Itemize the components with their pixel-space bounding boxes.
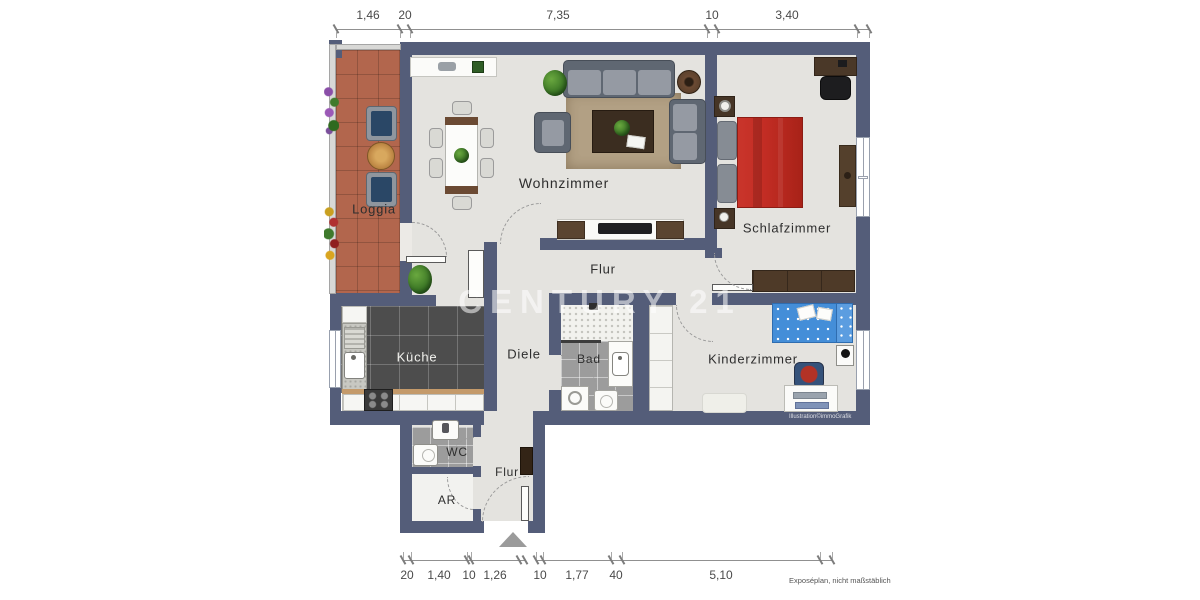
bedroom-window-bar (858, 176, 868, 179)
kitchen-window (329, 330, 341, 388)
dim-guide (543, 552, 544, 559)
sideboard-plant (472, 61, 484, 73)
wall-wc-ar-partition (412, 467, 481, 474)
room-label-wohnzimmer: Wohnzimmer (519, 175, 609, 191)
bed-fold-2 (778, 118, 783, 207)
armchair (534, 112, 571, 153)
loggia-door-leaf (406, 256, 446, 263)
room-label-flur-oben: Flur (590, 262, 616, 277)
dresser-knob (844, 172, 851, 179)
bedroom-sideboard (752, 270, 855, 292)
room-label-kueche: Küche (397, 350, 438, 365)
wall-top (400, 42, 870, 55)
dim-bottom-6: 1,77 (565, 568, 588, 582)
coffee-table-papers (626, 135, 645, 149)
bed-pillow-2 (717, 164, 737, 203)
dim-bottom-8: 5,10 (709, 568, 732, 582)
bedroom-desk-item (838, 60, 847, 67)
wall-wc-flur-1 (473, 425, 481, 437)
tv-cabinet-right (656, 221, 684, 239)
sofa-top (563, 60, 675, 98)
dim-bottom-3: 10 (462, 568, 475, 582)
room-label-kinderzimmer: Kinderzimmer (708, 352, 798, 367)
dim-guide (336, 31, 337, 38)
loggia-chair-1 (366, 106, 397, 141)
dim-bottom-5: 10 (533, 568, 546, 582)
wall-kitchen-diele (484, 306, 497, 411)
dim-guide (611, 552, 612, 559)
flower-box-bottom (324, 206, 339, 264)
dimension-line-top (336, 29, 869, 30)
wall-bottom-left (330, 411, 484, 425)
dim-guide (471, 552, 472, 559)
room-label-ar: AR (438, 493, 456, 507)
washing-machine-drum (568, 391, 582, 405)
kitchen-faucet (351, 355, 356, 360)
wall-vestibule-left (400, 425, 412, 533)
wall-loggia-bottom (330, 293, 412, 306)
hall-wardrobe (520, 447, 533, 475)
wall-vestibule-bottom-right (528, 521, 545, 533)
dim-top-1: 1,46 (356, 8, 379, 22)
loggia-round-table (367, 142, 395, 170)
dim-bottom-4: 1,26 (483, 568, 506, 582)
double-bed (737, 117, 803, 208)
sofa-top-cushion-2 (603, 70, 636, 95)
dining-table-plant (454, 148, 469, 163)
dim-top-2: 20 (398, 8, 411, 22)
sideboard-decor (438, 62, 456, 71)
bed-fold (753, 118, 762, 207)
wc-toilet-bowl (422, 449, 435, 462)
dimension-line-bottom-right (536, 560, 832, 561)
sofa-right-cushion-2 (673, 133, 697, 160)
dining-chair-bottom (452, 196, 472, 210)
dim-guide (869, 31, 870, 38)
room-label-bad: Bad (577, 352, 601, 366)
dim-guide (832, 552, 833, 559)
floor-plan: Loggia Wohnzimmer Schlafzimmer Flur Küch… (0, 0, 1200, 600)
entrance-arrow-icon (499, 532, 527, 547)
room-label-loggia: Loggia (352, 202, 396, 217)
livingroom-plant (543, 70, 567, 96)
armchair-cushion (542, 120, 564, 146)
dining-table-end-bottom (445, 186, 478, 194)
kitchen-cabinet-topleft (342, 306, 367, 323)
floor-vestibule-gap (484, 411, 533, 425)
sofa-right (669, 99, 706, 164)
dim-guide (410, 31, 411, 38)
side-table-round (677, 70, 701, 94)
dining-table-end-top (445, 117, 478, 125)
dining-chair-left-2 (429, 158, 443, 178)
room-label-diele: Diele (507, 347, 541, 362)
wall-kitchen-top (412, 295, 436, 306)
dim-top-3: 7,35 (546, 8, 569, 22)
wall-wc-flur-2 (473, 466, 481, 477)
nightstand-top-lamp (719, 100, 731, 112)
dimension-line-bottom-left (403, 560, 525, 561)
kids-rug (702, 393, 747, 413)
dim-guide (403, 552, 404, 559)
dining-chair-left-1 (429, 128, 443, 148)
dining-chair-right-1 (480, 128, 494, 148)
bedroom-desk (814, 57, 857, 76)
room-label-schlafzimmer: Schlafzimmer (743, 221, 831, 236)
wc-faucet (442, 423, 449, 433)
dim-guide (411, 552, 412, 559)
dining-chair-right-2 (480, 158, 494, 178)
bath-faucet (618, 356, 622, 360)
wall-wc-flur-3 (473, 509, 481, 521)
tv-screen (598, 223, 652, 234)
dim-top-5: 3,40 (775, 8, 798, 22)
nightstand-bottom-lamp (719, 212, 729, 222)
dim-bottom-2: 1,40 (427, 568, 450, 582)
kids-pillow-2 (816, 307, 833, 321)
kids-keyboard (795, 402, 829, 409)
wall-vestibule-right (533, 411, 545, 533)
dim-guide (857, 31, 858, 38)
bed-pillow-1 (717, 121, 737, 160)
kidsroom-window (856, 330, 870, 390)
dim-guide (717, 31, 718, 38)
kids-bed-blanket (836, 303, 853, 343)
dim-guide (467, 552, 468, 559)
illustrator-credit: Illustration©immoGrafik (789, 414, 851, 420)
wall-vestibule-bottom (400, 521, 484, 533)
shower-partition (561, 340, 601, 343)
room-label-flur-unten: Flur (495, 465, 519, 479)
dim-bottom-1: 20 (400, 568, 413, 582)
toilet-bowl (600, 395, 613, 408)
kids-lamp (841, 349, 850, 358)
kitchen-window-mullion (335, 331, 336, 387)
dim-guide (536, 552, 537, 559)
kidsroom-window-mullion (863, 331, 864, 389)
dim-guide (707, 31, 708, 38)
sofa-right-cushion-1 (673, 104, 697, 131)
dim-guide (820, 552, 821, 559)
wc-toilet (413, 444, 438, 466)
sofa-top-cushion-3 (638, 70, 671, 95)
kitchen-drainboard (344, 327, 365, 349)
dim-guide (400, 31, 401, 38)
dim-bottom-7: 40 (609, 568, 622, 582)
tv-cabinet-left (557, 221, 585, 239)
dim-guide (622, 552, 623, 559)
kids-monitor (793, 392, 827, 399)
wall-bath-west-lower (549, 390, 561, 411)
kitchen-stove (364, 389, 393, 411)
room-label-wc: WC (446, 445, 468, 459)
coffee-table-plant (614, 120, 630, 136)
bath-toilet (594, 390, 618, 411)
watermark: CENTURY 21 (458, 283, 742, 321)
footnote: Exposéplan, nicht maßstäblich (789, 576, 891, 585)
bedroom-window (856, 137, 870, 217)
dining-floor-plant (408, 265, 432, 294)
loggia-railing-top (336, 44, 401, 50)
dining-chair-top (452, 101, 472, 115)
dim-top-4: 10 (705, 8, 718, 22)
sofa-top-cushion-1 (568, 70, 601, 95)
bedroom-desk-chair (820, 76, 851, 100)
flower-box-top (324, 84, 339, 136)
